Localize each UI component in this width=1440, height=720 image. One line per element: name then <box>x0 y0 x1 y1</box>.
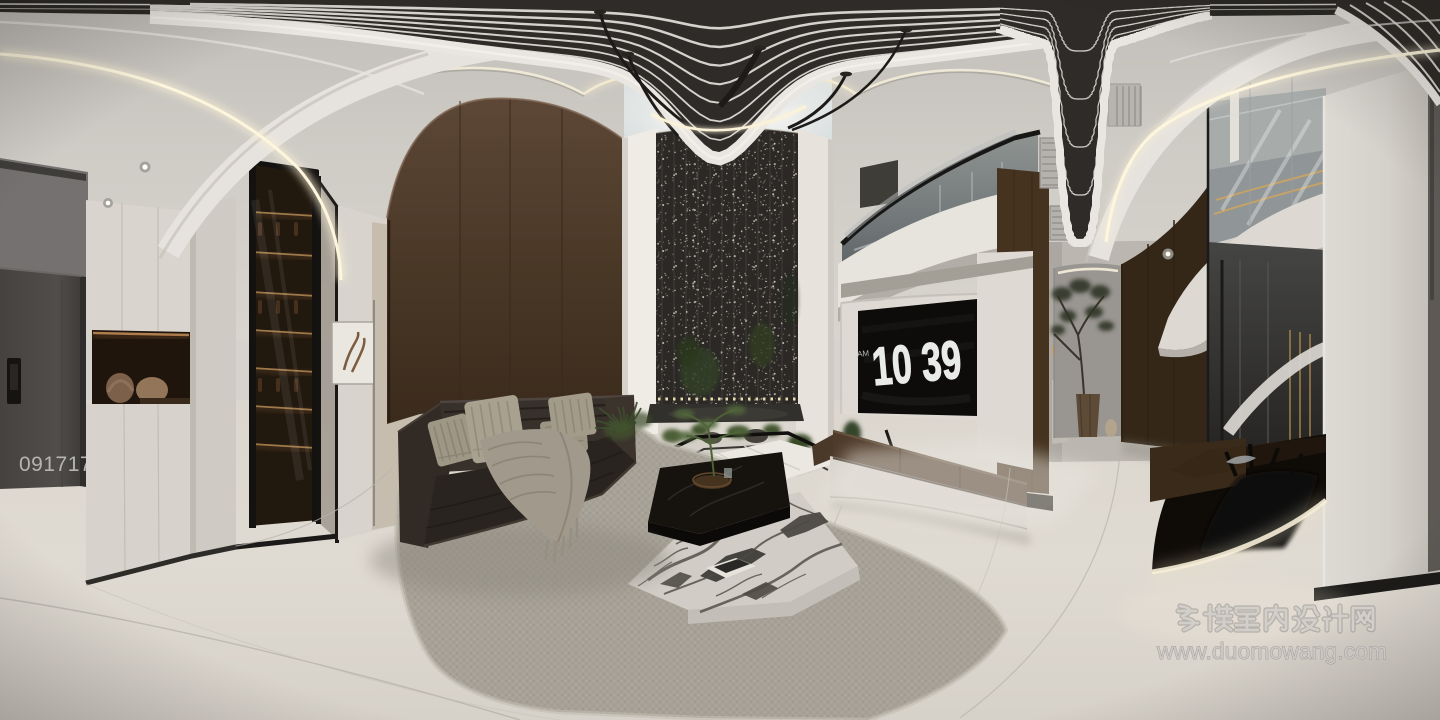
svg-text:www.duomowang.com: www.duomowang.com <box>1156 638 1387 664</box>
